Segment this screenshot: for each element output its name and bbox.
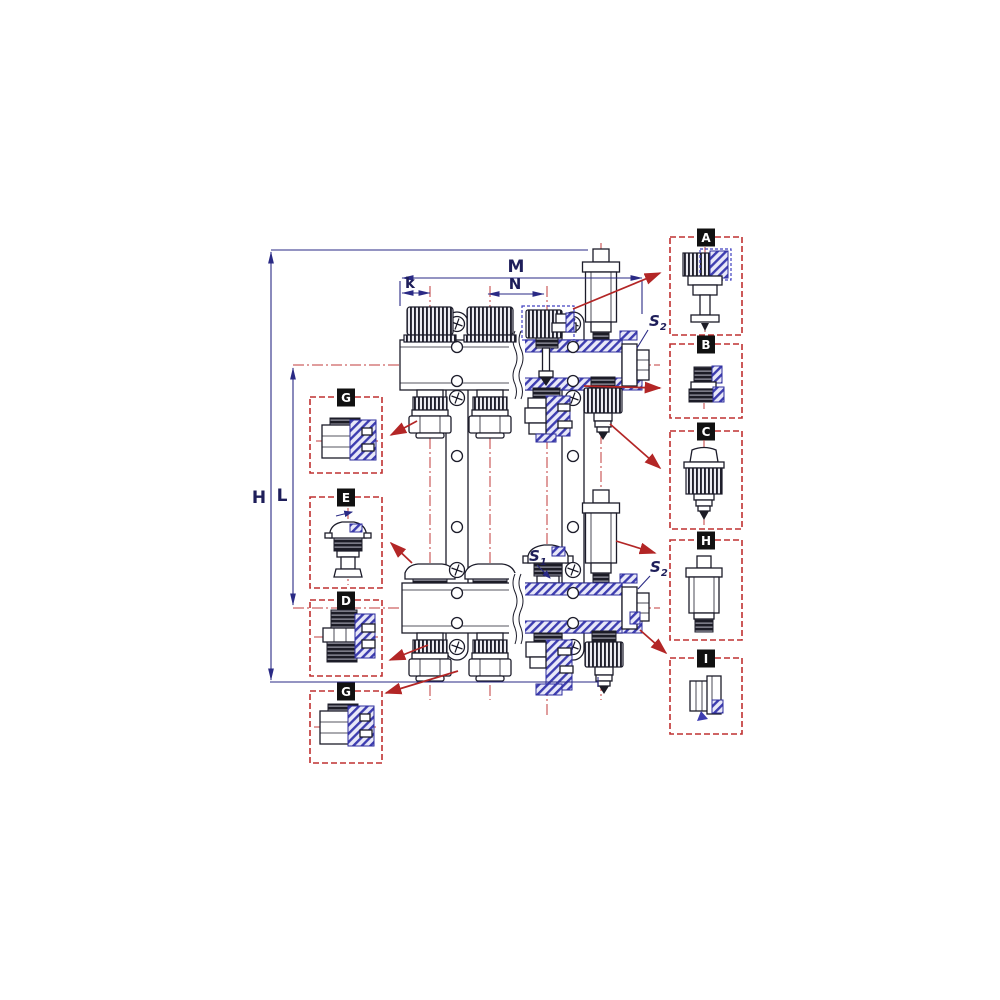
- callout-box-i: I: [670, 650, 742, 734]
- callout-letter-e: E: [342, 491, 350, 505]
- dimension-label-m: M: [508, 257, 525, 277]
- drain-connector-icon: [684, 440, 724, 525]
- flow-meter-cap-icon: [325, 508, 371, 585]
- drain-valve-bottom: [585, 631, 623, 694]
- callout-letter-g2: G: [341, 685, 351, 699]
- callout-letter-c: C: [702, 425, 711, 439]
- callout-box-c: C: [670, 423, 742, 529]
- euroconus-fitting-icon: [689, 366, 724, 409]
- callout-box-g1: G: [310, 389, 382, 473]
- end-cap-top: [622, 344, 649, 386]
- callout-letter-g1: G: [341, 391, 351, 405]
- dimension-label-l: L: [277, 486, 288, 506]
- valve-knob: [464, 307, 516, 342]
- end-plug-icon: [690, 676, 723, 721]
- callout-letter-i: I: [704, 652, 708, 666]
- svg-text:S2: S2: [650, 558, 668, 579]
- dimension-l: L: [277, 368, 293, 605]
- callout-box-e: E: [310, 489, 382, 588]
- compression-adapter-icon: [316, 418, 378, 460]
- air-vent-top: [583, 249, 620, 342]
- compression-adapter-icon: [314, 704, 376, 746]
- dimension-label-k: k: [405, 274, 416, 292]
- callout-box-h: H: [670, 532, 742, 640]
- thermostatic-valve-insert-icon: [683, 247, 731, 332]
- valve-knob: [404, 307, 456, 342]
- svg-text:S2: S2: [649, 312, 667, 333]
- dimension-k: k: [402, 274, 430, 293]
- label-s2-top: S2: [637, 312, 667, 348]
- callout-box-a: A: [670, 229, 742, 335]
- callout-box-d: D: [310, 592, 382, 676]
- callout-box-b: B: [670, 336, 742, 418]
- euroconus-fitting: [469, 390, 511, 438]
- end-cap-bottom: [622, 587, 649, 629]
- callout-letter-d: D: [341, 594, 351, 608]
- dimension-label-n: N: [509, 275, 522, 293]
- dimension-label-h: H: [252, 488, 266, 508]
- valve-s1-body: [526, 633, 573, 695]
- air-vent-icon: [686, 556, 722, 632]
- euroconus-fitting: [469, 633, 511, 681]
- bottom-manifold: [402, 490, 649, 645]
- euroconus-fitting: [409, 633, 451, 681]
- callout-letter-a: A: [701, 231, 711, 245]
- callout-letter-b: B: [701, 338, 710, 352]
- male-coupling-icon: [314, 610, 378, 662]
- manifold-technical-drawing: H L M k N S2 S1 S2 A: [0, 0, 1000, 1000]
- euroconus-fitting: [409, 390, 451, 438]
- label-s2-bottom: S2: [638, 558, 668, 589]
- callout-box-g2: G: [310, 683, 382, 763]
- callout-letter-h: H: [701, 534, 711, 548]
- air-vent-bottom: [583, 490, 620, 583]
